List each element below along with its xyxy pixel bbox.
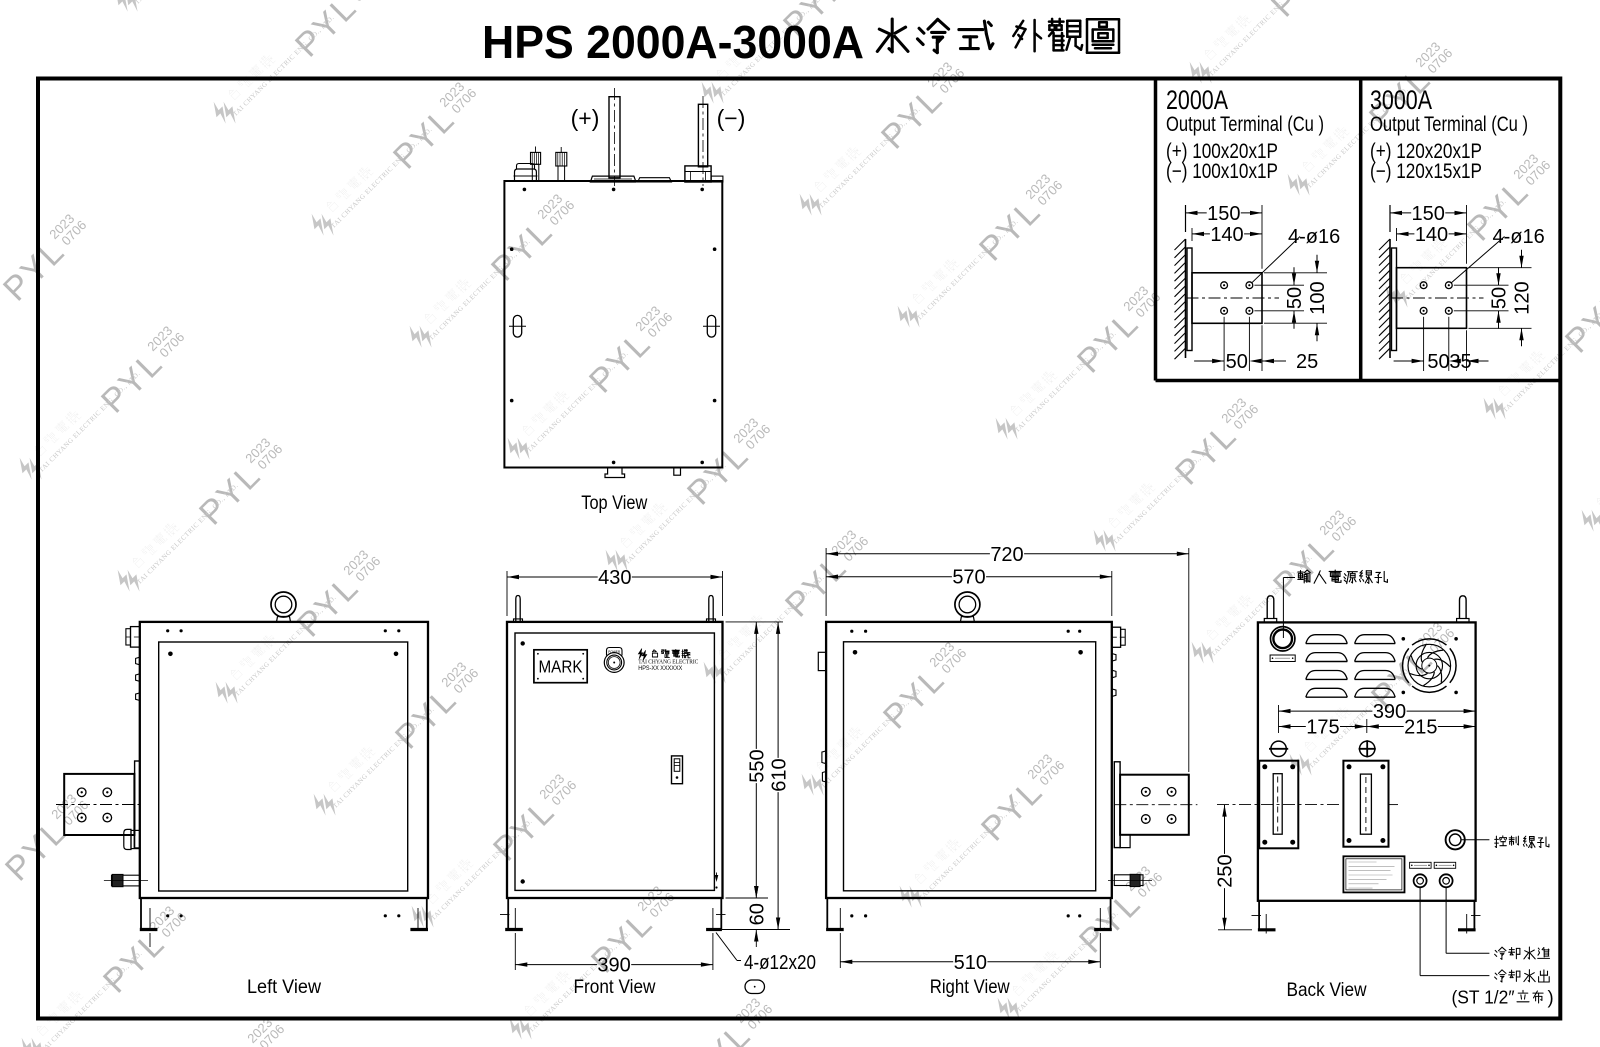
svg-text:140: 140	[1210, 224, 1243, 246]
svg-text:Front View: Front View	[574, 976, 657, 998]
svg-text:Output Terminal (Cu ): Output Terminal (Cu )	[1370, 113, 1528, 136]
svg-text:Left View: Left View	[247, 976, 322, 998]
svg-text:100: 100	[1307, 281, 1329, 314]
svg-text:(+): (+)	[571, 105, 600, 131]
svg-text:Back View: Back View	[1287, 979, 1368, 1001]
svg-text:175: 175	[1306, 717, 1339, 739]
svg-text:POWER: POWER	[608, 650, 621, 654]
svg-text:MARK: MARK	[539, 657, 583, 677]
svg-text:50: 50	[1489, 287, 1511, 309]
svg-text:550: 550	[747, 749, 769, 782]
svg-text:4-ø12x20: 4-ø12x20	[744, 952, 816, 974]
svg-text:Top View: Top View	[581, 492, 648, 514]
svg-text:2000A: 2000A	[1166, 85, 1228, 115]
svg-text:120: 120	[1512, 281, 1534, 314]
svg-text:HPS-XX XXXXXX: HPS-XX XXXXXX	[638, 665, 683, 672]
svg-text:150: 150	[1412, 203, 1445, 225]
svg-text:): )	[1548, 987, 1554, 1008]
svg-text:(−) 120x15x1P: (−) 120x15x1P	[1370, 160, 1482, 183]
svg-text:3000A: 3000A	[1370, 85, 1432, 115]
svg-text:Right View: Right View	[930, 976, 1011, 998]
svg-text:610: 610	[768, 758, 790, 791]
svg-text:140: 140	[1415, 224, 1448, 246]
svg-text:25: 25	[1296, 351, 1318, 373]
svg-text:50: 50	[1226, 351, 1248, 373]
svg-text:510: 510	[954, 952, 987, 974]
svg-text:390: 390	[1373, 701, 1406, 723]
svg-text:50: 50	[1284, 287, 1306, 309]
svg-text:HPS 2000A-3000A: HPS 2000A-3000A	[482, 16, 864, 68]
svg-text:(−) 100x10x1P: (−) 100x10x1P	[1166, 160, 1278, 183]
svg-text:60: 60	[747, 903, 769, 925]
svg-text:(ST 1/2″: (ST 1/2″	[1452, 987, 1515, 1008]
svg-text:Output Terminal (Cu ): Output Terminal (Cu )	[1166, 113, 1324, 136]
svg-text:430: 430	[598, 567, 631, 589]
svg-text:390: 390	[597, 955, 630, 977]
svg-text:215: 215	[1404, 717, 1437, 739]
svg-text:4-ø16: 4-ø16	[1288, 226, 1340, 248]
svg-text:150: 150	[1207, 203, 1240, 225]
svg-text:720: 720	[990, 544, 1023, 566]
svg-text:35: 35	[1449, 351, 1471, 373]
svg-text:4-ø16: 4-ø16	[1493, 226, 1545, 248]
svg-text:250: 250	[1215, 854, 1237, 887]
svg-text:50: 50	[1427, 351, 1449, 373]
svg-text:(−): (−)	[717, 105, 746, 131]
svg-text:570: 570	[952, 567, 985, 589]
